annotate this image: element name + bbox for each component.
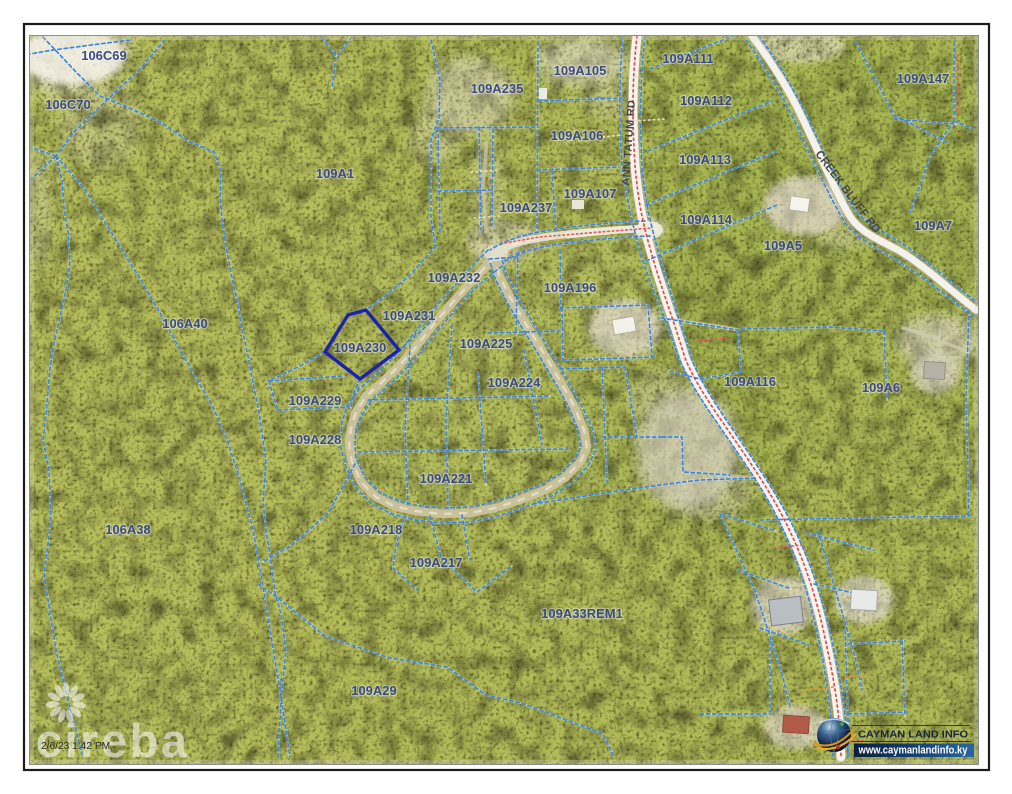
svg-text:109A33REM1: 109A33REM1 [541, 606, 623, 621]
svg-text:109A229: 109A229 [289, 393, 342, 408]
svg-text:106A38: 106A38 [105, 522, 151, 537]
svg-text:109A7: 109A7 [914, 218, 952, 233]
svg-text:106A40: 106A40 [162, 316, 208, 331]
svg-text:109A231: 109A231 [383, 308, 436, 323]
svg-text:CAYMAN LAND INFO: CAYMAN LAND INFO [858, 729, 968, 741]
svg-text:109A232: 109A232 [428, 270, 481, 285]
svg-text:109A228: 109A228 [289, 432, 342, 447]
svg-text:109A235: 109A235 [471, 81, 524, 96]
svg-text:106C69: 106C69 [81, 48, 127, 63]
svg-text:www.caymanlandinfo.ky: www.caymanlandinfo.ky [858, 745, 968, 757]
svg-text:109A217: 109A217 [410, 555, 463, 570]
svg-text:109A113: 109A113 [679, 152, 731, 167]
svg-text:109A6: 109A6 [862, 380, 900, 395]
svg-text:109A225: 109A225 [460, 336, 513, 351]
svg-text:109A237: 109A237 [500, 200, 553, 215]
svg-text:109A106: 109A106 [551, 128, 604, 143]
svg-text:106C70: 106C70 [45, 97, 91, 112]
svg-text:109A5: 109A5 [764, 238, 802, 253]
svg-text:109A224: 109A224 [488, 375, 542, 390]
svg-text:109A111: 109A111 [662, 51, 713, 66]
svg-text:109A105: 109A105 [554, 63, 607, 78]
svg-text:109A196: 109A196 [544, 280, 597, 295]
svg-text:109A1: 109A1 [316, 166, 354, 181]
svg-text:109A107: 109A107 [564, 186, 617, 201]
svg-text:109A116: 109A116 [724, 374, 776, 389]
svg-text:109A112: 109A112 [680, 93, 732, 108]
svg-text:109A230: 109A230 [334, 340, 387, 355]
svg-text:109A221: 109A221 [420, 471, 473, 486]
svg-text:109A218: 109A218 [350, 522, 403, 537]
svg-text:109A147: 109A147 [897, 71, 950, 86]
svg-text:2/6/23 1:42 PM: 2/6/23 1:42 PM [41, 741, 110, 752]
svg-text:109A114: 109A114 [680, 212, 733, 227]
svg-text:109A29: 109A29 [351, 683, 397, 698]
